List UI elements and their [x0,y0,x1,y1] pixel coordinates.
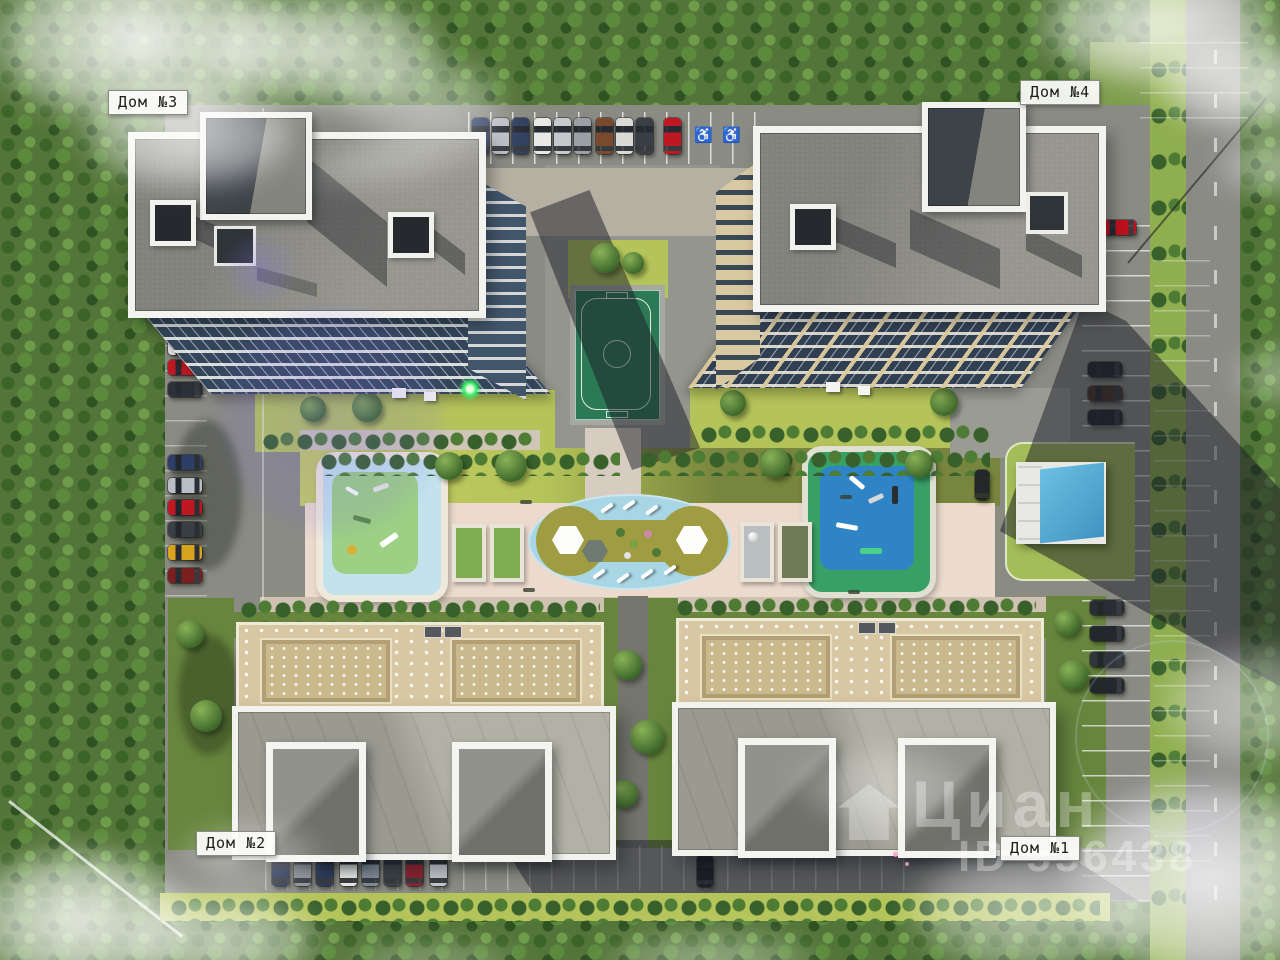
car [1090,626,1124,641]
car-red [664,118,681,154]
roof-shadow [1026,228,1082,278]
eye-shrub [630,540,638,548]
tree [612,650,642,680]
label-house1: Дом №1 [1000,836,1080,861]
hedges-deck-left [240,600,600,622]
house2-entrance-block [452,742,552,862]
trees-mid-band-right [640,450,990,476]
lens-flare-violet [165,255,495,585]
entrance-canopy [858,386,870,395]
car [168,568,202,583]
workout-equipment [860,548,882,554]
car [636,118,653,154]
roof-vent [878,622,896,634]
hedges-deck-right [676,598,1036,620]
entrance-canopy [826,382,840,392]
tree [622,252,644,274]
substation-panel-seams [1018,466,1042,540]
substation-blue-roof [1040,463,1104,544]
workout-equipment [892,486,898,504]
car [975,470,989,500]
decor-sphere [748,532,758,542]
eye-shrub [616,528,625,537]
house4-penthouse [922,102,1026,212]
roof-hatch [790,204,836,250]
planter-bench [490,524,524,582]
bench-mark [848,590,860,594]
car-red [1102,220,1136,235]
disabled-parking-icon: ♿ [694,126,713,144]
car [554,118,571,154]
roof-shadow [826,213,896,268]
tree [190,700,222,732]
planter-bench [740,522,774,582]
car [596,118,613,154]
eye-shrub [624,552,631,559]
bench-mark [520,500,532,504]
tree [590,243,620,273]
tree [930,388,958,416]
car [616,118,633,154]
tree [495,450,527,482]
hedges-house4-lawn [700,425,990,445]
roof-vent [858,622,876,634]
car [1090,600,1124,615]
label-house2: Дом №2 [196,831,276,856]
playground-right-surface [820,466,914,570]
roof-vent [424,626,442,638]
bench-mark [523,588,535,592]
tree [176,620,204,648]
house2-roof-block [452,640,580,702]
tree-shadow-3 [178,635,240,755]
eye-shrub [644,530,652,538]
lens-flare-violet-small [205,215,315,325]
tree [1054,610,1080,636]
roof-shadow [910,209,1000,289]
roof-hatch [388,212,434,258]
house1-roof-block [892,636,1020,698]
car [574,118,591,154]
roof-vent [444,626,462,638]
house4-penthouse-annex [1026,192,1068,234]
aerial-masterplan-render: ♿ ♿ [0,0,1280,960]
cloud [760,730,1000,840]
lens-flare-green-dot [458,377,482,401]
tree [760,448,790,478]
car [168,522,202,537]
tree [1058,660,1088,690]
label-house4: Дом №4 [1020,80,1100,105]
house1-roof-block [702,636,830,698]
roof-shadow [431,227,465,275]
label-house3: Дом №3 [108,90,188,115]
disabled-parking-icon: ♿ [722,126,741,144]
tree [720,390,746,416]
planter-bench [778,522,812,582]
eye-shrub [652,548,661,557]
car [168,545,202,560]
planter-bench [452,524,486,582]
tree [905,450,933,478]
bench-mark [840,495,852,499]
tree [630,720,664,754]
house2-roof-block [262,640,390,702]
